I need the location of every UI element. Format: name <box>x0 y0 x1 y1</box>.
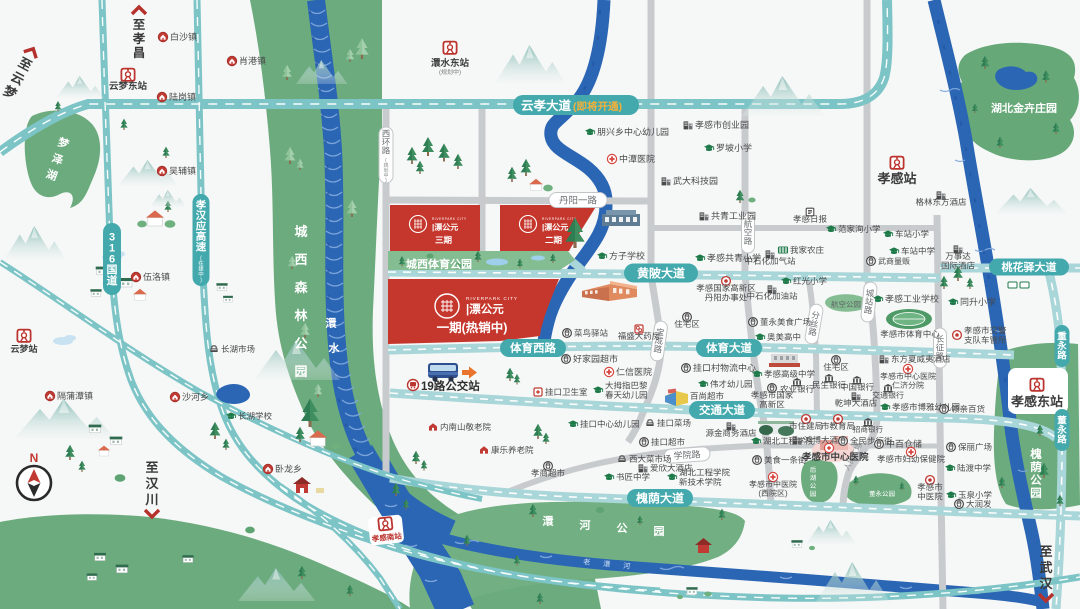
svg-text:福盛大药房: 福盛大药房 <box>618 330 661 342</box>
svg-text:挂口卫生室: 挂口卫生室 <box>545 386 588 398</box>
svg-text:伍洛镇: 伍洛镇 <box>143 270 170 283</box>
svg-text:红光小学: 红光小学 <box>793 275 828 287</box>
svg-text:孝感东站: 孝感东站 <box>1010 391 1063 410</box>
svg-text:): ) <box>200 276 202 284</box>
svg-text:住宅区: 住宅区 <box>674 318 700 330</box>
svg-text:高新区: 高新区 <box>759 399 785 411</box>
svg-text:城: 城 <box>294 221 307 240</box>
svg-text:|漂公元: |漂公元 <box>466 301 504 317</box>
svg-text:中石化加油站: 中石化加油站 <box>746 290 798 302</box>
svg-text:罗坡小学: 罗坡小学 <box>716 141 752 154</box>
svg-text:澴: 澴 <box>326 315 338 331</box>
svg-text:隔蒲潭镇: 隔蒲潭镇 <box>57 389 93 402</box>
svg-text:林: 林 <box>294 305 308 324</box>
svg-text:湖北工程学院: 湖北工程学院 <box>763 435 815 447</box>
svg-text:共青工业园: 共青工业园 <box>711 209 756 222</box>
svg-text:书匠中学: 书匠中学 <box>616 471 651 483</box>
svg-text:领亲百货: 领亲百货 <box>951 403 986 415</box>
svg-text:中国银行: 中国银行 <box>840 381 875 393</box>
svg-text:汉: 汉 <box>1039 573 1053 592</box>
svg-text:长湖市场: 长湖市场 <box>221 343 255 355</box>
svg-text:园: 园 <box>810 488 817 498</box>
svg-text:路: 路 <box>863 304 873 317</box>
svg-text:园: 园 <box>1030 485 1042 501</box>
svg-text:澴: 澴 <box>603 559 611 570</box>
svg-text:(规划中): (规划中) <box>439 67 461 76</box>
svg-text:百尚超市: 百尚超市 <box>690 390 725 402</box>
svg-text:路: 路 <box>1057 348 1067 362</box>
svg-text:RIVERPARK CITY: RIVERPARK CITY <box>432 216 467 221</box>
svg-text:RIVERPARK CITY: RIVERPARK CITY <box>542 216 577 221</box>
svg-text:车站小学: 车站小学 <box>895 228 930 240</box>
svg-text:园: 园 <box>654 523 665 539</box>
svg-text:体育西路: 体育西路 <box>510 340 556 356</box>
svg-text:沙河乡: 沙河乡 <box>182 390 209 403</box>
svg-text:长湖学校: 长湖学校 <box>238 410 273 422</box>
svg-text:二期: 二期 <box>545 234 563 246</box>
svg-text:澴: 澴 <box>543 513 555 529</box>
svg-text:住宅区: 住宅区 <box>823 361 849 373</box>
svg-text:(西院区): (西院区) <box>758 488 788 499</box>
svg-text:伟才幼儿园: 伟才幼儿园 <box>710 378 753 390</box>
svg-text:孝感市博雅幼儿园: 孝感市博雅幼儿园 <box>892 401 960 413</box>
svg-text:交通银行: 交通银行 <box>872 390 904 401</box>
svg-text:市住建局: 市住建局 <box>789 420 823 432</box>
svg-text:槐荫大道: 槐荫大道 <box>635 489 684 506</box>
svg-text:路: 路 <box>382 145 391 157</box>
svg-text:(即将开通): (即将开通) <box>573 99 622 114</box>
svg-text:城西体育公园: 城西体育公园 <box>406 256 472 272</box>
svg-text:新技术学院: 新技术学院 <box>679 476 722 488</box>
svg-text:中医院: 中医院 <box>917 491 943 503</box>
svg-text:孝感工业学校: 孝感工业学校 <box>885 292 939 305</box>
svg-text:体育大道: 体育大道 <box>706 340 752 356</box>
svg-text:川: 川 <box>144 489 158 508</box>
svg-text:路: 路 <box>1057 432 1067 446</box>
svg-text:挂口村物流中心: 挂口村物流中心 <box>693 361 756 374</box>
svg-text:路: 路 <box>744 235 753 247</box>
svg-text:保丽广场: 保丽广场 <box>958 441 992 453</box>
svg-text:孝感市体育中心: 孝感市体育中心 <box>880 328 940 340</box>
svg-text:河: 河 <box>623 561 631 572</box>
svg-text:湖北金卉庄园: 湖北金卉庄园 <box>991 100 1057 116</box>
svg-text:航空公园: 航空公园 <box>831 299 861 310</box>
svg-text:白沙镇: 白沙镇 <box>170 30 197 43</box>
svg-text:孝感日报: 孝感日报 <box>793 213 828 225</box>
svg-text:森: 森 <box>294 277 308 296</box>
svg-text:市教育局: 市教育局 <box>821 420 855 432</box>
svg-text:挂口中心幼儿园: 挂口中心幼儿园 <box>580 418 640 430</box>
svg-text:范家洵小学: 范家洵小学 <box>838 223 881 235</box>
svg-text:云梦站: 云梦站 <box>10 342 37 355</box>
svg-text:N: N <box>30 449 39 466</box>
svg-text:招商银行: 招商银行 <box>853 424 883 435</box>
svg-text:道: 道 <box>107 273 118 289</box>
svg-text:公: 公 <box>617 520 628 536</box>
svg-text:丹阳办事处: 丹阳办事处 <box>705 292 748 304</box>
svg-text:好家园超市: 好家园超市 <box>573 352 618 365</box>
svg-text:学院路: 学院路 <box>673 447 701 462</box>
svg-text:中百仓储: 中百仓储 <box>886 437 922 450</box>
svg-text:挂口菜场: 挂口菜场 <box>657 417 691 429</box>
svg-text:公: 公 <box>294 333 307 352</box>
svg-text:老: 老 <box>583 557 591 568</box>
svg-text:格林东方酒店: 格林东方酒店 <box>915 196 967 208</box>
svg-text:西: 西 <box>294 249 307 268</box>
svg-text:黄陂大道: 黄陂大道 <box>637 264 685 281</box>
svg-text:中石化加气站: 中石化加气站 <box>744 255 796 267</box>
svg-text:东方夏威夷酒店: 东方夏威夷酒店 <box>891 353 951 365</box>
svg-text:卧龙乡: 卧龙乡 <box>275 462 302 475</box>
svg-text:吴辅镇: 吴辅镇 <box>169 164 196 177</box>
svg-text:三期: 三期 <box>435 234 453 246</box>
svg-text:云梦东站: 云梦东站 <box>109 78 148 92</box>
svg-text:孝感市妇幼保健院: 孝感市妇幼保健院 <box>877 453 946 465</box>
svg-text:车站中学: 车站中学 <box>901 245 936 257</box>
svg-text:武大科技园: 武大科技园 <box>673 174 718 187</box>
svg-text:源金商务酒店: 源金商务酒店 <box>705 427 757 439</box>
svg-text:园: 园 <box>294 361 307 380</box>
svg-text:内南山敬老院: 内南山敬老院 <box>440 421 492 433</box>
svg-text:孝感市中心医院: 孝感市中心医院 <box>801 449 869 463</box>
svg-text:|漂公元: |漂公元 <box>432 222 458 233</box>
svg-text:国际酒店: 国际酒店 <box>941 260 976 272</box>
svg-text:中潭医院: 中潭医院 <box>619 152 655 165</box>
svg-text:|漂公元: |漂公元 <box>542 222 568 233</box>
svg-text:菜鸟驿站: 菜鸟驿站 <box>574 327 609 339</box>
svg-text:交通大道: 交通大道 <box>699 402 745 418</box>
svg-text:孝商超市: 孝商超市 <box>531 467 566 479</box>
svg-text:大润发: 大润发 <box>966 498 992 510</box>
svg-text:孝感站: 孝感站 <box>876 168 916 187</box>
svg-text:桃花驿大道: 桃花驿大道 <box>1002 259 1057 275</box>
svg-text:昌: 昌 <box>133 42 146 61</box>
svg-text:美食一条街: 美食一条街 <box>764 454 807 466</box>
svg-text:孝感高级中学: 孝感高级中学 <box>764 368 816 380</box>
svg-text:春天幼儿园: 春天幼儿园 <box>605 389 648 401</box>
svg-text:19路公交站: 19路公交站 <box>421 378 480 394</box>
svg-text:同升小学: 同升小学 <box>960 295 996 308</box>
svg-text:仁信医院: 仁信医院 <box>616 365 652 378</box>
svg-text:丹阳一路: 丹阳一路 <box>559 192 598 206</box>
svg-text:一期(热销中): 一期(热销中) <box>437 317 508 336</box>
svg-text:朋兴乡中心幼儿园: 朋兴乡中心幼儿园 <box>597 125 669 138</box>
svg-text:董永美食广场: 董永美食广场 <box>760 316 811 328</box>
svg-text:速: 速 <box>196 240 207 255</box>
svg-text:水: 水 <box>329 340 341 356</box>
svg-text:武商量贩: 武商量贩 <box>878 256 910 267</box>
svg-text:挂口超市: 挂口超市 <box>651 436 686 448</box>
svg-text:云孝大道: 云孝大道 <box>521 95 572 114</box>
svg-text:陆岗镇: 陆岗镇 <box>169 90 196 103</box>
svg-text:康乐养老院: 康乐养老院 <box>491 444 534 456</box>
svg-text:奥美高中: 奥美高中 <box>767 331 801 343</box>
svg-text:河: 河 <box>580 517 591 533</box>
svg-text:孝感市创业园: 孝感市创业园 <box>695 118 749 131</box>
svg-text:方子学校: 方子学校 <box>609 249 645 262</box>
svg-text:陆渡中学: 陆渡中学 <box>957 462 992 474</box>
svg-text:董永公园: 董永公园 <box>869 488 895 498</box>
svg-text:支队车管所: 支队车管所 <box>964 334 1007 346</box>
svg-text:肖港镇: 肖港镇 <box>239 54 266 67</box>
svg-text:我家农庄: 我家农庄 <box>790 244 825 256</box>
